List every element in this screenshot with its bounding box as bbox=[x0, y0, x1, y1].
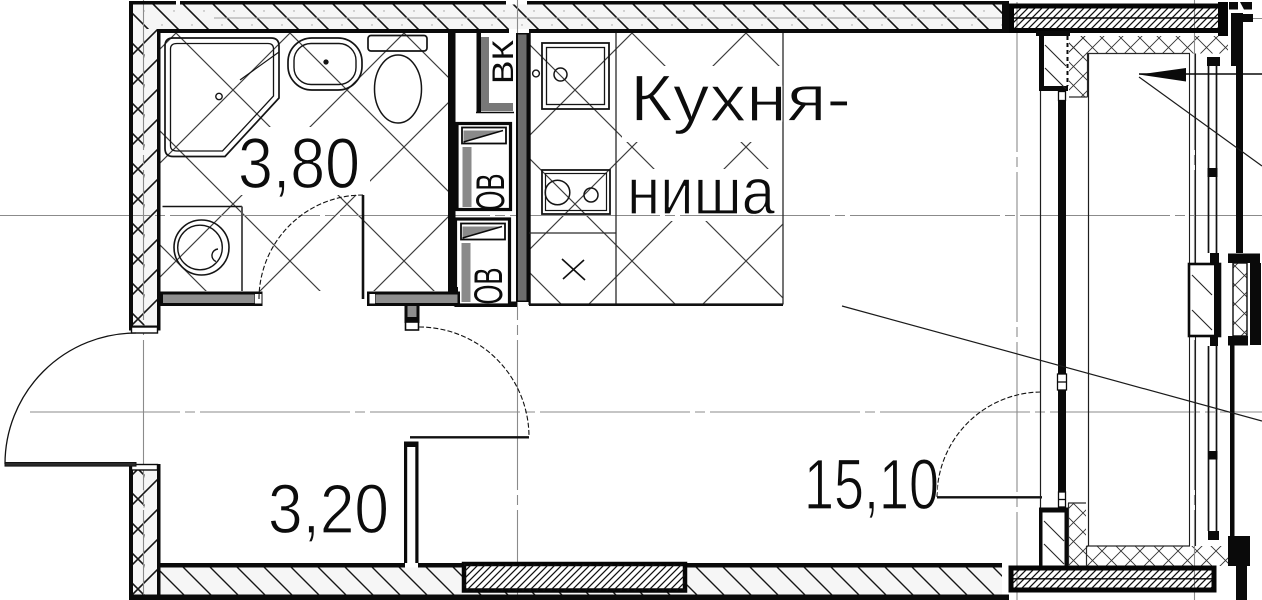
svg-text:3,80: 3,80 bbox=[238, 125, 360, 204]
svg-text:ОВ: ОВ bbox=[469, 174, 513, 211]
svg-text:ОВ: ОВ bbox=[467, 268, 511, 305]
svg-text:Кухня-: Кухня- bbox=[630, 61, 851, 135]
svg-text:3,20: 3,20 bbox=[268, 470, 389, 548]
svg-text:ВК: ВК bbox=[487, 39, 520, 84]
svg-text:ниша: ниша bbox=[627, 154, 775, 228]
svg-text:15,10: 15,10 bbox=[804, 446, 939, 525]
